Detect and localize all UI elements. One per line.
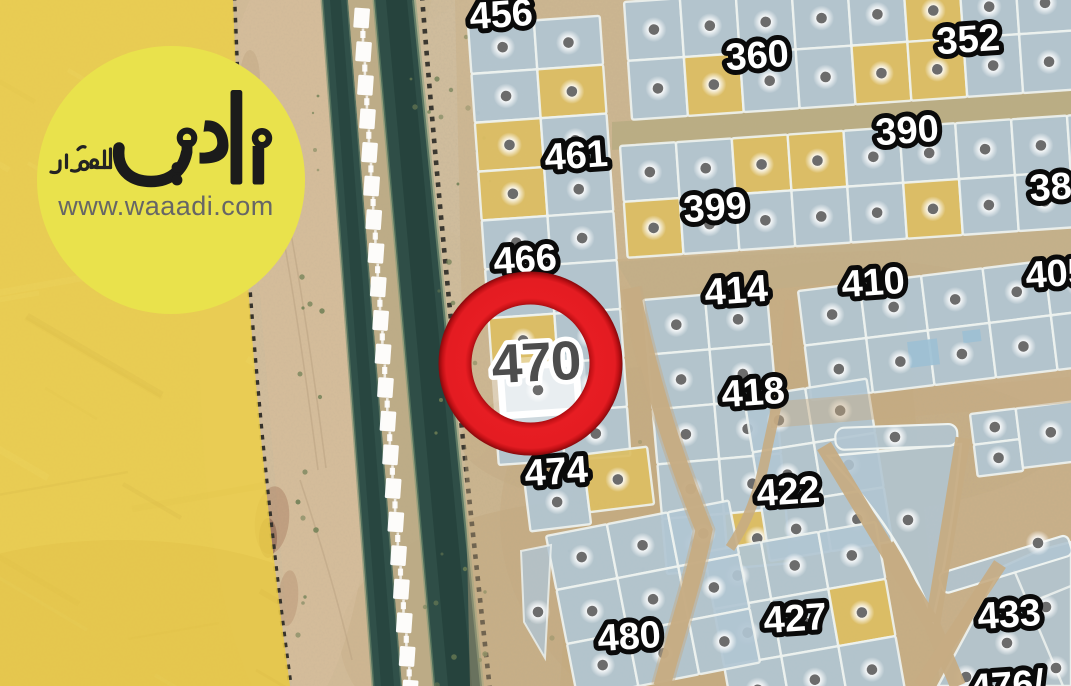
svg-text:476/: 476/	[969, 662, 1046, 686]
svg-text:414: 414	[703, 268, 769, 314]
svg-text:390: 390	[874, 108, 940, 154]
svg-text:360: 360	[724, 33, 790, 79]
svg-text:474: 474	[523, 449, 589, 495]
svg-text:418: 418	[720, 370, 786, 416]
svg-text:433: 433	[976, 592, 1042, 638]
svg-text:461: 461	[543, 133, 609, 179]
svg-text:352: 352	[935, 17, 1001, 63]
svg-text:405: 405	[1024, 251, 1071, 297]
svg-text:480: 480	[596, 614, 662, 660]
svg-text:410: 410	[840, 260, 906, 306]
svg-text:399: 399	[682, 185, 748, 231]
svg-text:www.waaadi.com: www.waaadi.com	[57, 191, 274, 221]
svg-text:422: 422	[755, 469, 821, 515]
svg-text:456: 456	[468, 0, 534, 38]
svg-text:427: 427	[762, 596, 828, 642]
svg-text:470: 470	[490, 329, 582, 396]
svg-text:389: 389	[1028, 164, 1071, 210]
